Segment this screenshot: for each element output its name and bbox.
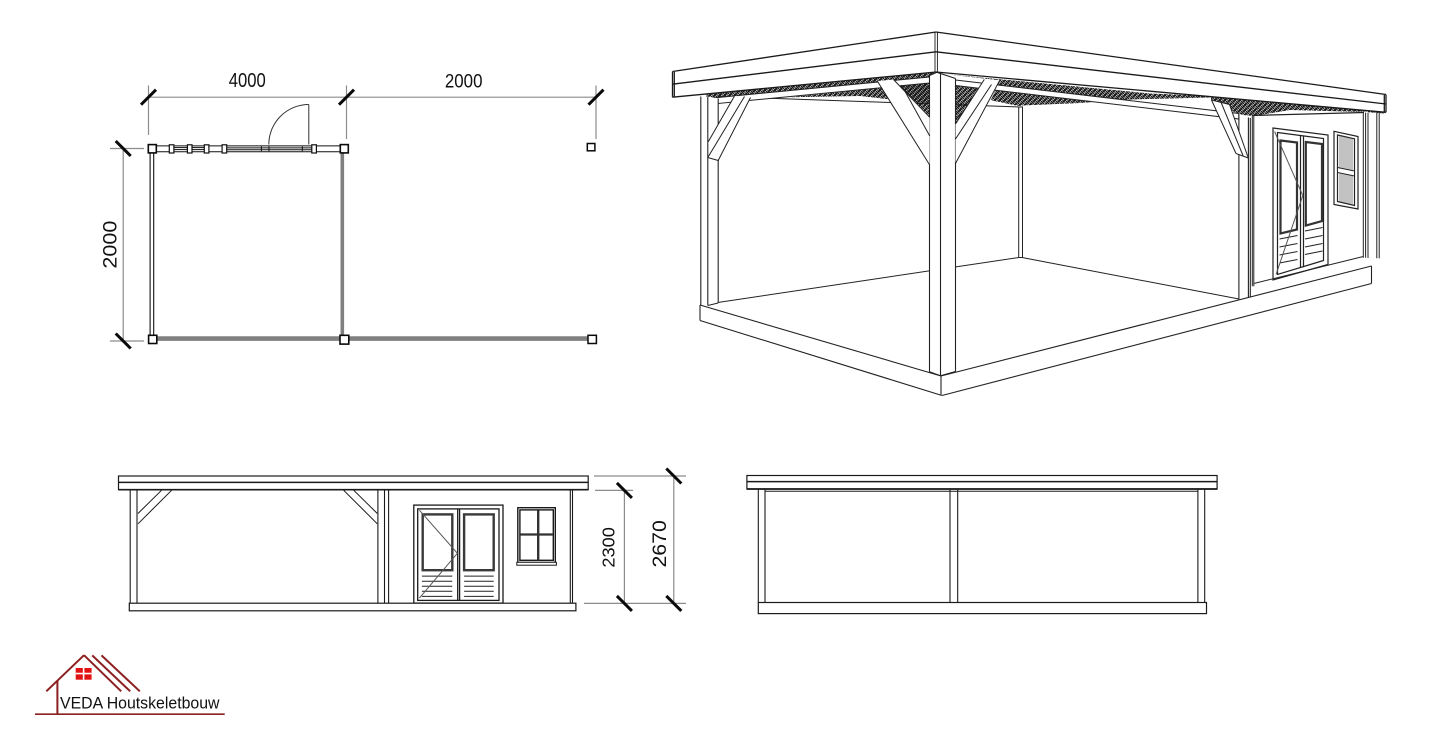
svg-text:4000: 4000 (229, 70, 266, 92)
svg-text:2670: 2670 (650, 520, 671, 568)
svg-text:2300: 2300 (599, 527, 619, 568)
svg-text:2000: 2000 (445, 72, 483, 93)
svg-text:2000: 2000 (100, 221, 121, 269)
svg-text:VEDA Houtskeletbouw: VEDA Houtskeletbouw (60, 695, 220, 713)
